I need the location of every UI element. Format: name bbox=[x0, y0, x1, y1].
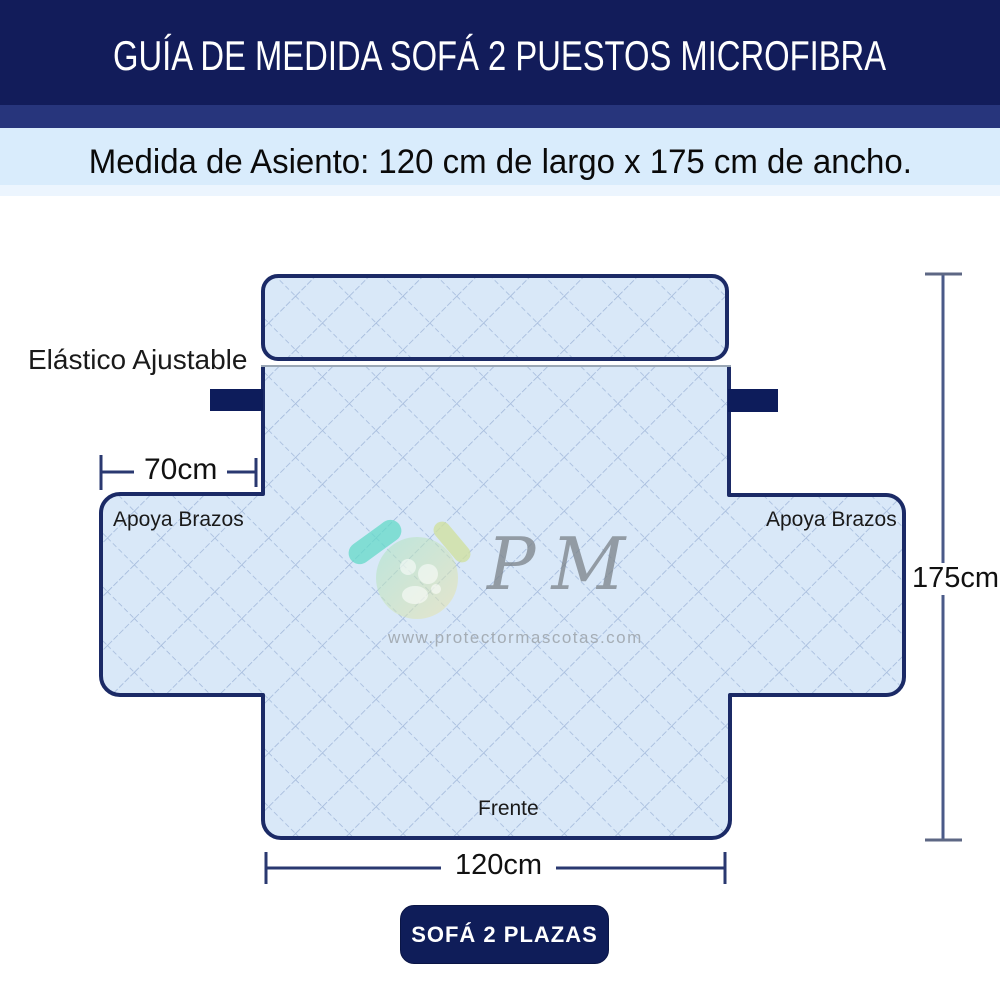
dimension-120cm-label: 120cm bbox=[441, 850, 556, 882]
elastic-strap-label: Elástico Ajustable bbox=[28, 345, 247, 376]
dimension-175cm-lines bbox=[925, 274, 962, 840]
title-banner: GUÍA DE MEDIDA SOFÁ 2 PUESTOS MICROFIBRA bbox=[0, 0, 1000, 128]
seat-measure-text: Medida de Asiento: 120 cm de largo x 175… bbox=[88, 143, 911, 182]
elastic-strap-left bbox=[210, 389, 263, 411]
front-label: Frente bbox=[478, 797, 539, 820]
seat-measure-band: Medida de Asiento: 120 cm de largo x 175… bbox=[0, 128, 1000, 196]
sofa-size-badge: SOFÁ 2 PLAZAS bbox=[400, 905, 609, 964]
dimension-175cm-label: 175cm bbox=[906, 563, 1000, 595]
watermark-website: www.protectormascotas.com bbox=[388, 628, 643, 648]
watermark-monogram: PM bbox=[487, 522, 641, 606]
sofa-cover-measurement-guide: GUÍA DE MEDIDA SOFÁ 2 PUESTOS MICROFIBRA… bbox=[0, 0, 1000, 1000]
page-title: GUÍA DE MEDIDA SOFÁ 2 PUESTOS MICROFIBRA bbox=[113, 32, 886, 96]
armrest-left-label: Apoya Brazos bbox=[113, 508, 244, 531]
elastic-strap-right bbox=[728, 389, 778, 412]
dimension-70cm-label: 70cm bbox=[134, 453, 227, 486]
backrest-flap bbox=[263, 276, 727, 359]
armrest-right-label: Apoya Brazos bbox=[766, 508, 897, 531]
